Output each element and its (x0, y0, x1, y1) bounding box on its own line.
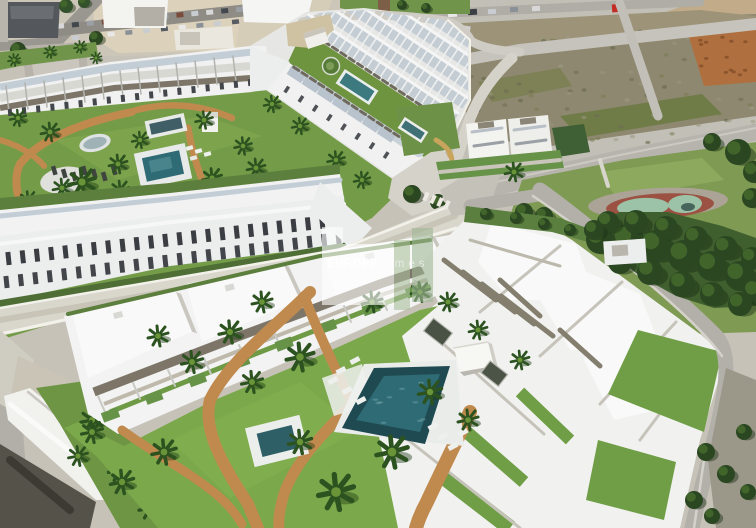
svg-text:EUROPE: EUROPE (327, 258, 378, 270)
svg-text:homes: homes (374, 258, 429, 270)
